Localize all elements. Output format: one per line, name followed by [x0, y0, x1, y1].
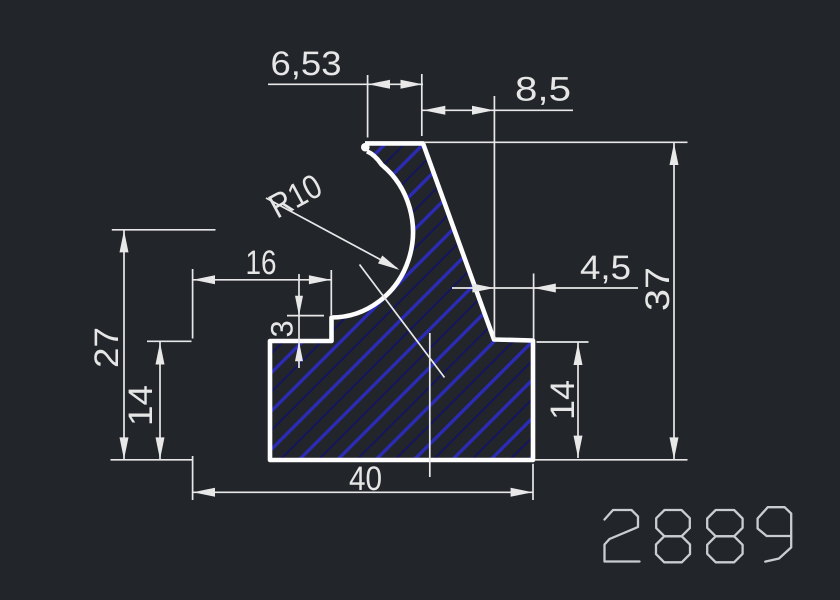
svg-text:16: 16 [246, 244, 277, 282]
svg-text:37: 37 [639, 267, 677, 311]
svg-text:3: 3 [265, 320, 300, 337]
svg-text:40: 40 [349, 460, 382, 498]
svg-text:6,53: 6,53 [271, 45, 342, 83]
svg-text:4,5: 4,5 [580, 249, 631, 287]
svg-text:14: 14 [122, 385, 160, 426]
svg-text:14: 14 [544, 380, 582, 420]
svg-text:27: 27 [88, 327, 126, 368]
svg-text:8,5: 8,5 [515, 71, 571, 109]
